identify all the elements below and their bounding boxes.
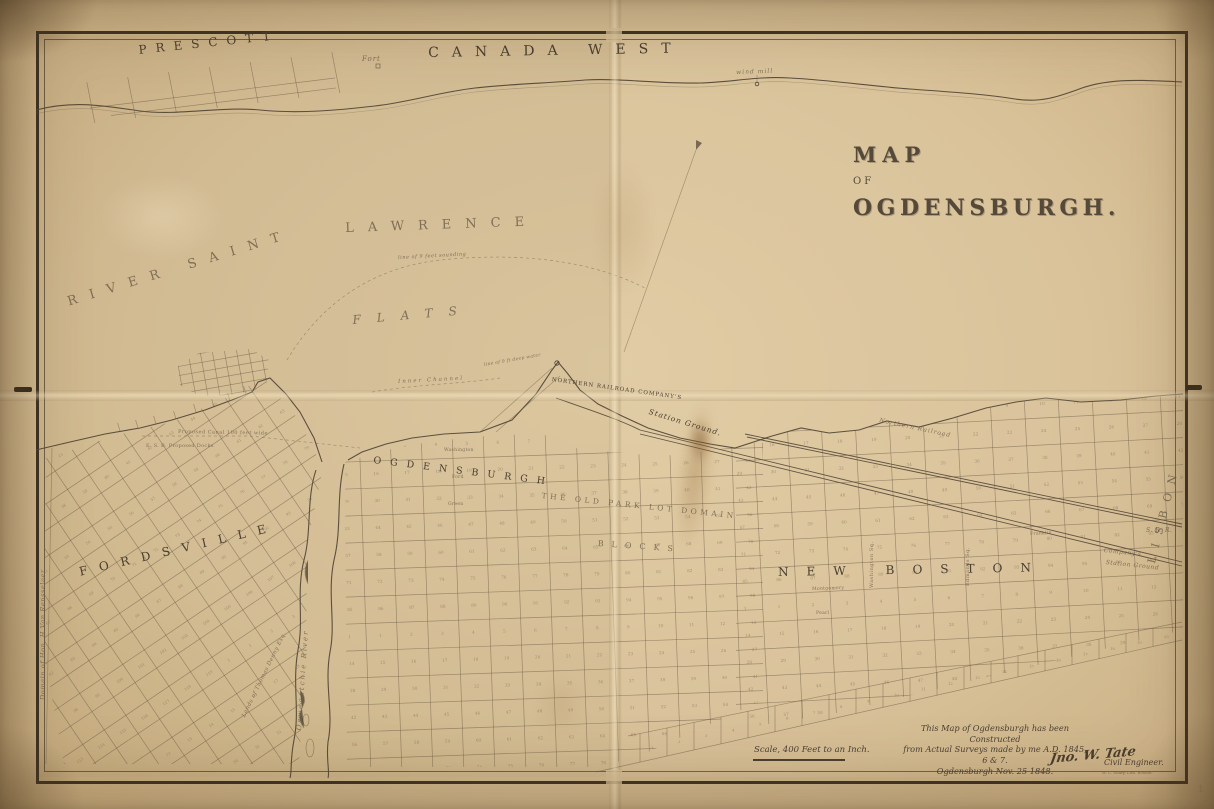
franklin-street-label: Franklin: [1030, 532, 1052, 538]
river-saint-label: RIVER SAINT: [66, 228, 294, 309]
flats-label: FLATS: [352, 303, 473, 325]
surveyor-note-line3: Ogdensburgh Nov. 25 1848.: [900, 766, 1090, 777]
inner-channel-label: Inner Channel: [398, 377, 464, 386]
canada-west-label: CANADA WEST: [428, 42, 684, 60]
srr-company-label: Company's: [1103, 548, 1141, 558]
green-street-label: Green: [448, 503, 463, 508]
windmill-label: wind mill: [736, 69, 773, 76]
washington-sq-label: Washington Sq.: [870, 541, 875, 588]
pencil-number: 1: [1198, 786, 1204, 795]
washington-street-label: Washington: [444, 449, 474, 454]
sounding-line-label: line of 9 feet sounding: [398, 252, 466, 261]
van-rensselaer-label: Domain of Hon. H Van Rensselaer: [40, 569, 47, 700]
deep-water-label: line of 9 ft deep water: [484, 354, 541, 368]
civil-engineer-label: Civil Engineer.: [1104, 758, 1164, 767]
scale-rule: [753, 759, 845, 761]
prescott-label: PRESCOTT: [138, 29, 280, 56]
fort-label: Fort: [362, 56, 381, 63]
northern-railroad-label: NORTHERN RAILROAD COMPANY'S: [551, 378, 682, 402]
ford-street-label: Ford: [452, 476, 464, 481]
fordsville-label: FORDSVILLE: [78, 520, 279, 577]
edmands-sq-label: Edmands Sq.: [966, 547, 971, 586]
lithographer-imprint: W. C. Sharp Lith. Boston.: [1102, 770, 1153, 775]
surveyor-note-line1: This Map of Ogdensburgh has been Constru…: [900, 723, 1090, 744]
map-labels: PRESCOTTFortCANADA WESTwind millRIVER SA…: [0, 0, 1214, 809]
oswegatchie-river-label: Oswegatchie River: [296, 629, 310, 730]
old-park-lot-label: THE OLD PARK LOT DOMAIN: [541, 492, 737, 520]
lands-denny-label: Lands of Thomas Denny Esq.: [242, 632, 288, 719]
new-boston-label: NEW BOSTON: [778, 561, 1049, 578]
esb-docks-label: E. S. B. Proposed Docks: [146, 444, 214, 449]
station-ground-label: Station Ground.: [648, 408, 723, 437]
map-scan: 1234567891011121314151617181920212223242…: [0, 0, 1214, 809]
proposed-canal-label: Proposed Canal 100 feet wide: [178, 430, 268, 437]
pearl-street-label: Pearl: [816, 612, 829, 617]
montgomery-street-label: Montgomery: [812, 587, 844, 593]
lawrence-label: LAWRENCE: [345, 215, 538, 235]
scale-note: Scale, 400 Feet to an Inch.: [754, 745, 870, 755]
lisbon-label: LISBON: [1146, 465, 1181, 565]
northern-railroad-diag-label: Northern Railroad: [879, 418, 952, 439]
blocks-label: BLOCKS: [597, 540, 681, 554]
ogdensburgh-district-label: OGDENSBURGH: [373, 456, 555, 488]
